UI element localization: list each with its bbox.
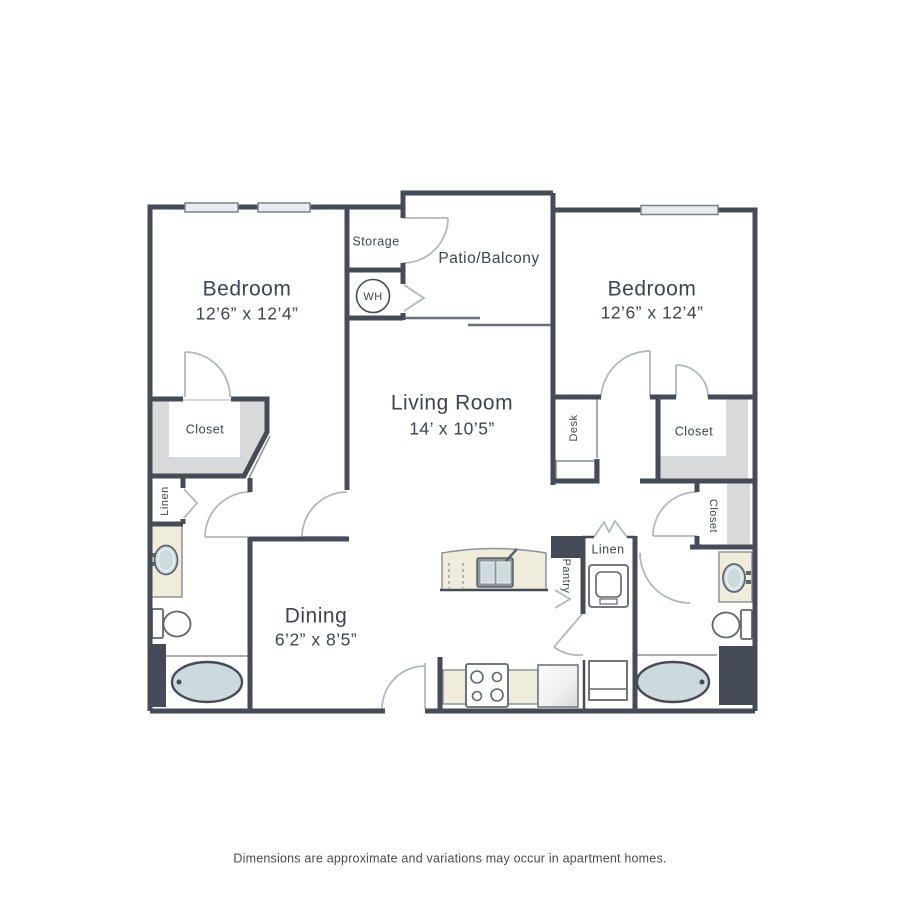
- floor-plan-page: Bedroom 12’6” x 12’4” Bedroom 12’6” x 12…: [0, 0, 900, 900]
- stove-icon: [466, 664, 508, 707]
- washer-icon: [589, 565, 628, 607]
- storage-label: Storage: [352, 234, 399, 248]
- linen-left-label: Linen: [159, 486, 171, 515]
- toilet-icon: [152, 609, 191, 638]
- window: [258, 203, 310, 212]
- toilet-icon: [713, 610, 753, 639]
- disclaimer-text: Dimensions are approximate and variation…: [233, 851, 666, 865]
- closet-right-lower-label: Closet: [707, 499, 719, 533]
- bathtub-icon: [637, 662, 709, 702]
- kitchen-island: [440, 549, 548, 591]
- window: [185, 203, 238, 212]
- wall-block: [551, 536, 581, 558]
- living-room-label: Living Room: [391, 392, 513, 415]
- window: [641, 206, 718, 215]
- refrigerator-icon: [538, 665, 578, 707]
- laundry-appliances: [589, 565, 628, 700]
- bedroom-left-dims: 12’6” x 12’4”: [196, 304, 299, 324]
- floor-plan: Bedroom 12’6” x 12’4” Bedroom 12’6” x 12…: [0, 0, 900, 900]
- desk-label: Desk: [568, 414, 580, 441]
- bedroom-right-label: Bedroom: [608, 278, 697, 301]
- closet-right-label: Closet: [675, 424, 713, 438]
- pantry-label: Pantry: [560, 559, 572, 594]
- closet-left-label: Closet: [186, 422, 224, 436]
- bedroom-left-label: Bedroom: [203, 278, 292, 301]
- wall-block: [148, 644, 166, 707]
- closet-right-shape: [656, 399, 748, 479]
- wall-block: [719, 646, 753, 705]
- dryer-icon: [589, 661, 627, 700]
- desk-shelf: [556, 461, 595, 481]
- dining-label: Dining: [285, 605, 348, 628]
- living-room-dims: 14’ x 10’5”: [409, 419, 495, 439]
- linen-center-label: Linen: [591, 542, 624, 556]
- water-heater-label: WH: [363, 291, 382, 303]
- closet-right-lower-shape: [727, 483, 750, 546]
- bedroom-right-dims: 12’6” x 12’4”: [601, 303, 704, 323]
- bathtub-icon: [172, 662, 242, 702]
- patio-label: Patio/Balcony: [438, 250, 539, 267]
- patio-sliding-door: [403, 318, 554, 325]
- dining-dims: 6’2” x 8’5”: [275, 630, 357, 650]
